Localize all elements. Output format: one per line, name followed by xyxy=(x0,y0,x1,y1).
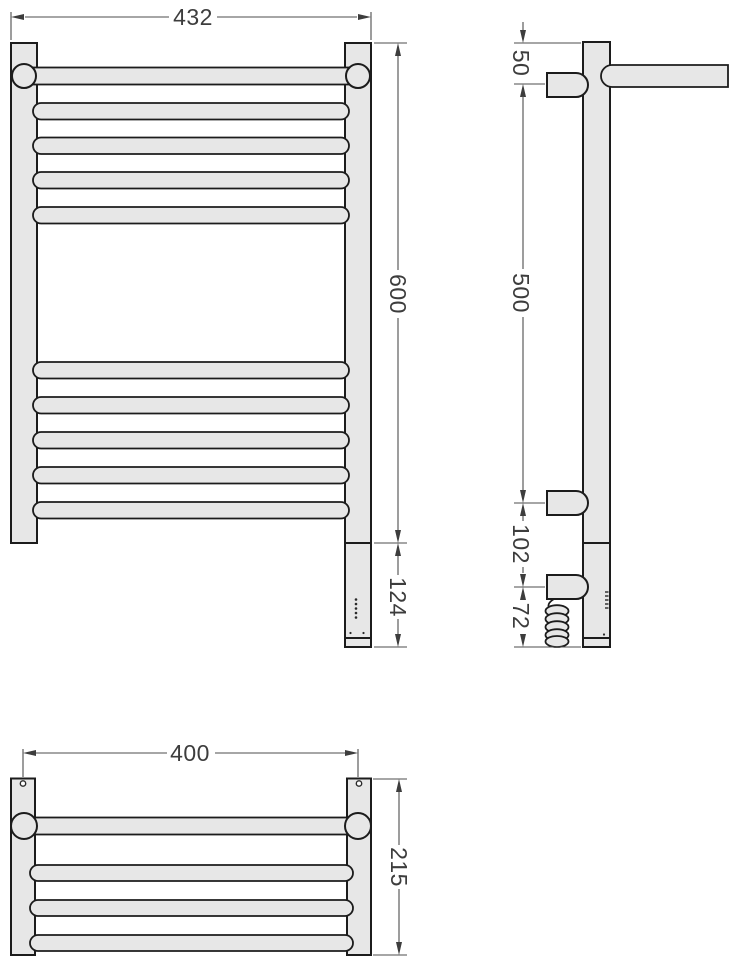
rung xyxy=(33,362,349,379)
rung xyxy=(33,172,349,189)
side-post xyxy=(583,42,610,638)
rung xyxy=(33,432,349,449)
side-shelf-bar xyxy=(601,65,728,87)
top-view: 400 215 xyxy=(11,740,412,955)
side-bracket-spacing-label: 500 xyxy=(508,273,534,313)
towel-rail-drawing: 432 600 124 xyxy=(0,0,737,970)
front-lower-rungs xyxy=(33,362,349,519)
side-element-offset-dimension: 102 xyxy=(508,503,534,587)
side-cable-label: 72 xyxy=(508,603,534,630)
front-height-dimension: 600 xyxy=(374,43,411,543)
side-bracket-spacing-dimension: 500 xyxy=(508,84,534,503)
side-top-offset-dimension: 50 xyxy=(508,22,534,76)
right-mounting-hole xyxy=(356,781,361,786)
front-width-label: 432 xyxy=(173,4,213,30)
top-left-plate xyxy=(11,779,35,956)
front-left-ball-joint xyxy=(12,64,36,88)
shelf-tube xyxy=(30,900,353,916)
side-top-offset-label: 50 xyxy=(508,50,534,77)
side-cable-bracket xyxy=(547,575,588,599)
front-left-post xyxy=(11,43,37,543)
front-heater-label: 124 xyxy=(385,577,411,617)
side-heater-base xyxy=(583,638,610,647)
top-left-ball-joint xyxy=(11,813,37,839)
top-shelf-tubes xyxy=(30,865,353,951)
shelf-tube xyxy=(30,865,353,881)
top-right-ball-joint xyxy=(345,813,371,839)
side-element-offset-label: 102 xyxy=(508,524,534,564)
front-heater-base xyxy=(345,638,371,647)
front-shelf-bar xyxy=(24,68,358,85)
rung xyxy=(33,502,349,519)
side-view: 50 500 102 72 xyxy=(508,22,728,647)
rung xyxy=(33,138,349,155)
left-mounting-hole xyxy=(20,781,25,786)
front-right-post xyxy=(345,43,371,638)
rung xyxy=(33,467,349,484)
front-height-label: 600 xyxy=(385,274,411,314)
rung xyxy=(33,207,349,224)
top-depth-label: 215 xyxy=(386,847,412,887)
front-width-dimension: 432 xyxy=(11,4,371,40)
side-middle-bracket xyxy=(547,491,588,515)
top-depth-dimension: 215 xyxy=(373,779,412,955)
technical-drawing-page: 432 600 124 xyxy=(0,0,737,970)
front-view: 432 600 124 xyxy=(11,4,411,647)
rung xyxy=(33,103,349,120)
front-right-ball-joint xyxy=(346,64,370,88)
side-cable-dimension: 72 xyxy=(508,587,534,647)
shelf-tube xyxy=(30,935,353,951)
top-shelf-bar xyxy=(24,818,358,835)
top-mounting-width-dimension: 400 xyxy=(23,740,358,777)
front-heater-dimension: 124 xyxy=(374,543,411,647)
side-top-bracket xyxy=(547,73,588,97)
top-mounting-width-label: 400 xyxy=(170,740,210,766)
front-upper-rungs xyxy=(33,103,349,224)
rung xyxy=(33,397,349,414)
coiled-cable xyxy=(546,599,569,647)
